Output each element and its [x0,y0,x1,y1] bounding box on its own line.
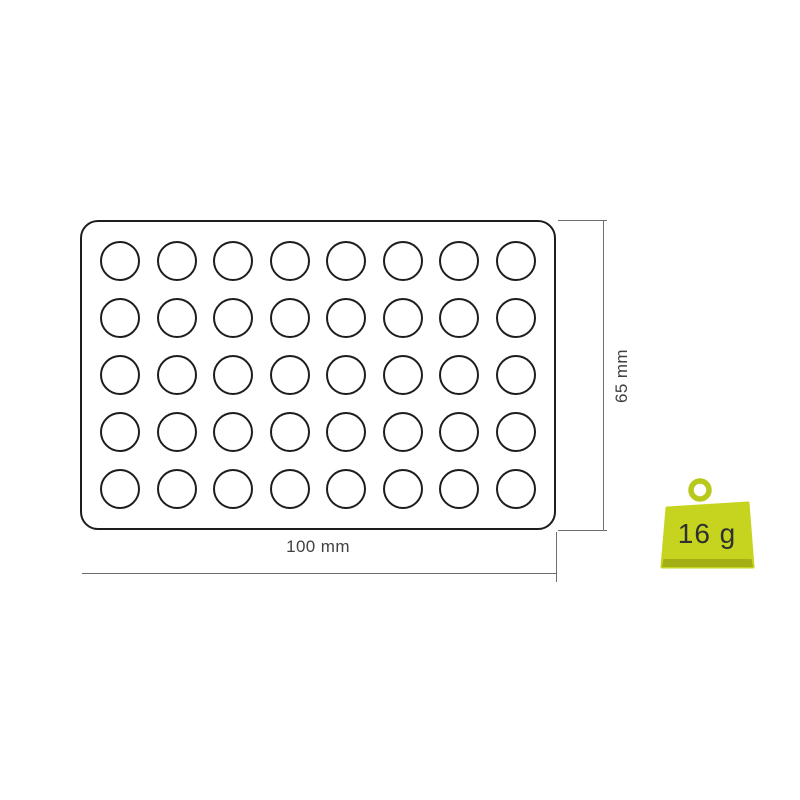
height-dimension-label-text: 65 mm [612,349,632,403]
mold-cavity [100,241,140,281]
mold-cavity [326,412,366,452]
mold-cavity [439,469,479,509]
mold-cavity [326,241,366,281]
height-extension-tick-top [558,220,607,221]
mold-cavity [213,412,253,452]
height-extension-tick-bottom [558,530,607,531]
mold-cavity [383,412,423,452]
mold-cavity [326,298,366,338]
weight-base-band [662,559,753,567]
mold-cavity [270,469,310,509]
width-dimension-label: 100 mm [80,537,556,557]
mold-cavity [100,298,140,338]
mold-cavity [383,355,423,395]
mold-cavity [326,355,366,395]
mold-cavity [157,241,197,281]
mold-cavity [496,241,536,281]
mold-cavity [439,298,479,338]
mold-cavity [326,469,366,509]
mold-cavity [439,412,479,452]
mold-cavity [496,355,536,395]
mold-cavity [270,412,310,452]
mold-cavity [213,355,253,395]
mold-cavity [213,298,253,338]
mold-cavity [100,412,140,452]
weight-label: 16 g [678,518,737,549]
mold-cavity [270,298,310,338]
mold-cavity [157,298,197,338]
mold-cavity [157,412,197,452]
mold-cavity [439,241,479,281]
width-dimension-line [82,573,556,574]
mold-cavity [100,355,140,395]
mold-cavity [213,469,253,509]
width-extension-tick [556,532,557,582]
mold-tray [80,220,556,530]
mold-cavity [383,241,423,281]
weight-ring-icon [691,481,709,499]
mold-cavity [100,469,140,509]
mold-cavity [383,469,423,509]
mold-cavity [270,355,310,395]
mold-cavity [383,298,423,338]
dimension-diagram: 100 mm 65 mm 16 g [0,0,800,800]
height-dimension-label: 65 mm [601,220,643,531]
mold-cavity [213,241,253,281]
mold-cavity [157,355,197,395]
mold-cavity [496,412,536,452]
mold-cavity [270,241,310,281]
mold-cavity [439,355,479,395]
weight-icon: 16 g [650,468,765,580]
mold-cavity [496,298,536,338]
mold-cavity [157,469,197,509]
mold-cavity [496,469,536,509]
